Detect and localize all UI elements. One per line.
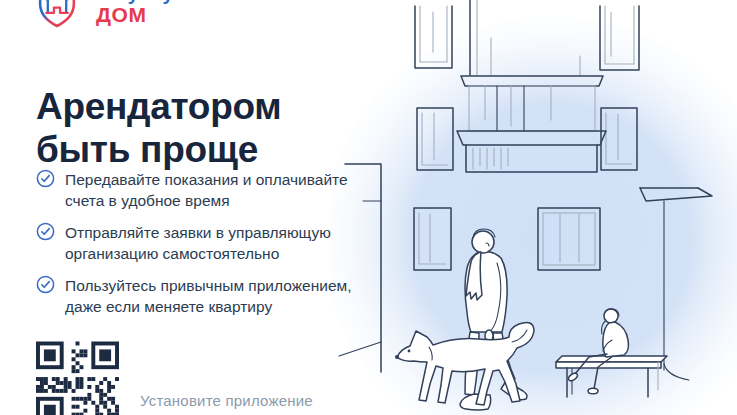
install-app-caption: Установите приложение — [140, 392, 313, 409]
illustration — [330, 0, 737, 415]
benefit-text: Пользуйтесь привычным приложением, даже … — [65, 275, 351, 317]
check-circle-icon — [36, 222, 55, 241]
benefit-text: Отправляйте заявки в управляющую организ… — [65, 222, 331, 264]
promo-banner[interactable]: госуслуги дом Арендатором быть проще Пер… — [0, 0, 737, 415]
check-circle-icon — [36, 169, 55, 188]
list-item: Отправляйте заявки в управляющую организ… — [36, 222, 366, 264]
benefits-list: Передавайте показания и оплачивайте счет… — [36, 169, 366, 317]
brand-name-bottom: дом — [96, 3, 195, 26]
house-shield-icon — [34, 0, 80, 32]
benefit-text: Передавайте показания и оплачивайте счет… — [65, 169, 348, 211]
list-item: Пользуйтесь привычным приложением, даже … — [36, 275, 366, 317]
logo: госуслуги дом — [34, 0, 195, 32]
page-title: Арендатором быть проще — [36, 85, 386, 171]
check-circle-icon — [36, 275, 55, 294]
list-item: Передавайте показания и оплачивайте счет… — [36, 169, 366, 211]
qr-code — [36, 341, 119, 415]
